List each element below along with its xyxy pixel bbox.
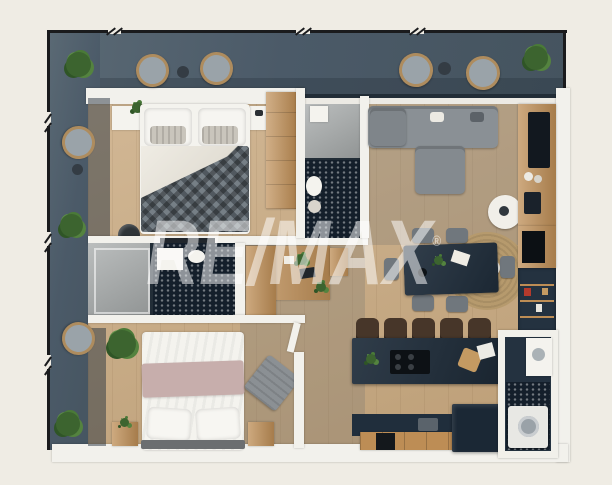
- island-herb-plant: [366, 354, 376, 364]
- bathroom1-sink: [310, 106, 328, 122]
- bed1-cushion-right: [202, 126, 238, 144]
- balcony-plant-top-right: [524, 46, 548, 70]
- balcony-side-table-3: [72, 164, 83, 175]
- counter-oven-module: [376, 433, 395, 450]
- microwave: [524, 192, 541, 214]
- kettle: [534, 175, 542, 183]
- coffee-machine: [524, 172, 533, 181]
- shelf-decor-tan: [542, 288, 548, 295]
- nightstand-decor: [255, 110, 263, 116]
- floor-plan-render: RE/MAX®: [0, 0, 612, 485]
- bed2-headboard: [141, 440, 245, 449]
- washing-machine-door: [518, 416, 539, 437]
- shelf-decor-red: [524, 288, 531, 296]
- registered-trademark-symbol: ®: [432, 233, 441, 250]
- bed1-cushion-left: [150, 126, 186, 144]
- bed2-pillow-left: [146, 407, 192, 442]
- sofa-left-module: [370, 108, 406, 146]
- dining-chair: [446, 228, 468, 243]
- bedroom2-right-wall: [294, 352, 304, 448]
- balcony-plant-left-mid: [60, 214, 83, 237]
- bathroom2-shower-tray: [94, 248, 150, 314]
- bed2-throw-mauve: [141, 360, 244, 398]
- bed2-pillow-right: [195, 407, 241, 442]
- wc-sink: [532, 348, 545, 361]
- bookshelf-shelf: [520, 284, 554, 286]
- bookshelf-shelf: [520, 300, 554, 302]
- balcony-plant-top-left: [66, 52, 91, 77]
- bathroom1-shower-glass: [305, 158, 362, 160]
- bedroom1-balcony-glass-door: [88, 98, 110, 236]
- bookshelf-shelf: [520, 316, 554, 318]
- shelf-decor-white: [536, 304, 542, 312]
- cooktop-burner: [408, 364, 414, 370]
- balcony-side-table-2: [438, 62, 451, 75]
- dining-chair: [446, 296, 468, 312]
- built-in-oven: [528, 112, 550, 168]
- bedroom2-top-wall: [88, 315, 305, 323]
- right-outer-wall: [556, 88, 570, 462]
- nightstand-plant-2: [120, 418, 129, 427]
- sofa-chaise: [415, 146, 465, 194]
- balcony-side-table: [177, 66, 189, 78]
- watermark-text: RE/MAX: [146, 202, 432, 304]
- cooktop-burner: [408, 354, 414, 360]
- cooktop-burner: [395, 364, 401, 370]
- counter-sink: [418, 418, 438, 431]
- bathroom1-toilet: [306, 176, 322, 196]
- bedroom2-nightstand-right: [248, 422, 274, 446]
- balcony-plant-left-bottom: [56, 412, 80, 436]
- sofa-throw-pillow: [430, 112, 444, 122]
- bedroom2-plant-large: [108, 330, 136, 358]
- sofa-throw-pillow-dark: [470, 112, 484, 122]
- kitchen-counter-drawers: [360, 432, 453, 450]
- fridge: [452, 404, 504, 452]
- dining-chair: [500, 256, 515, 278]
- tv-screen: [522, 231, 545, 263]
- side-table-decor: [499, 206, 509, 216]
- cooktop-burner: [395, 354, 401, 360]
- bedroom1-wardrobe: [266, 92, 296, 209]
- railing-right: [563, 31, 566, 93]
- remax-watermark: RE/MAX®: [146, 206, 441, 289]
